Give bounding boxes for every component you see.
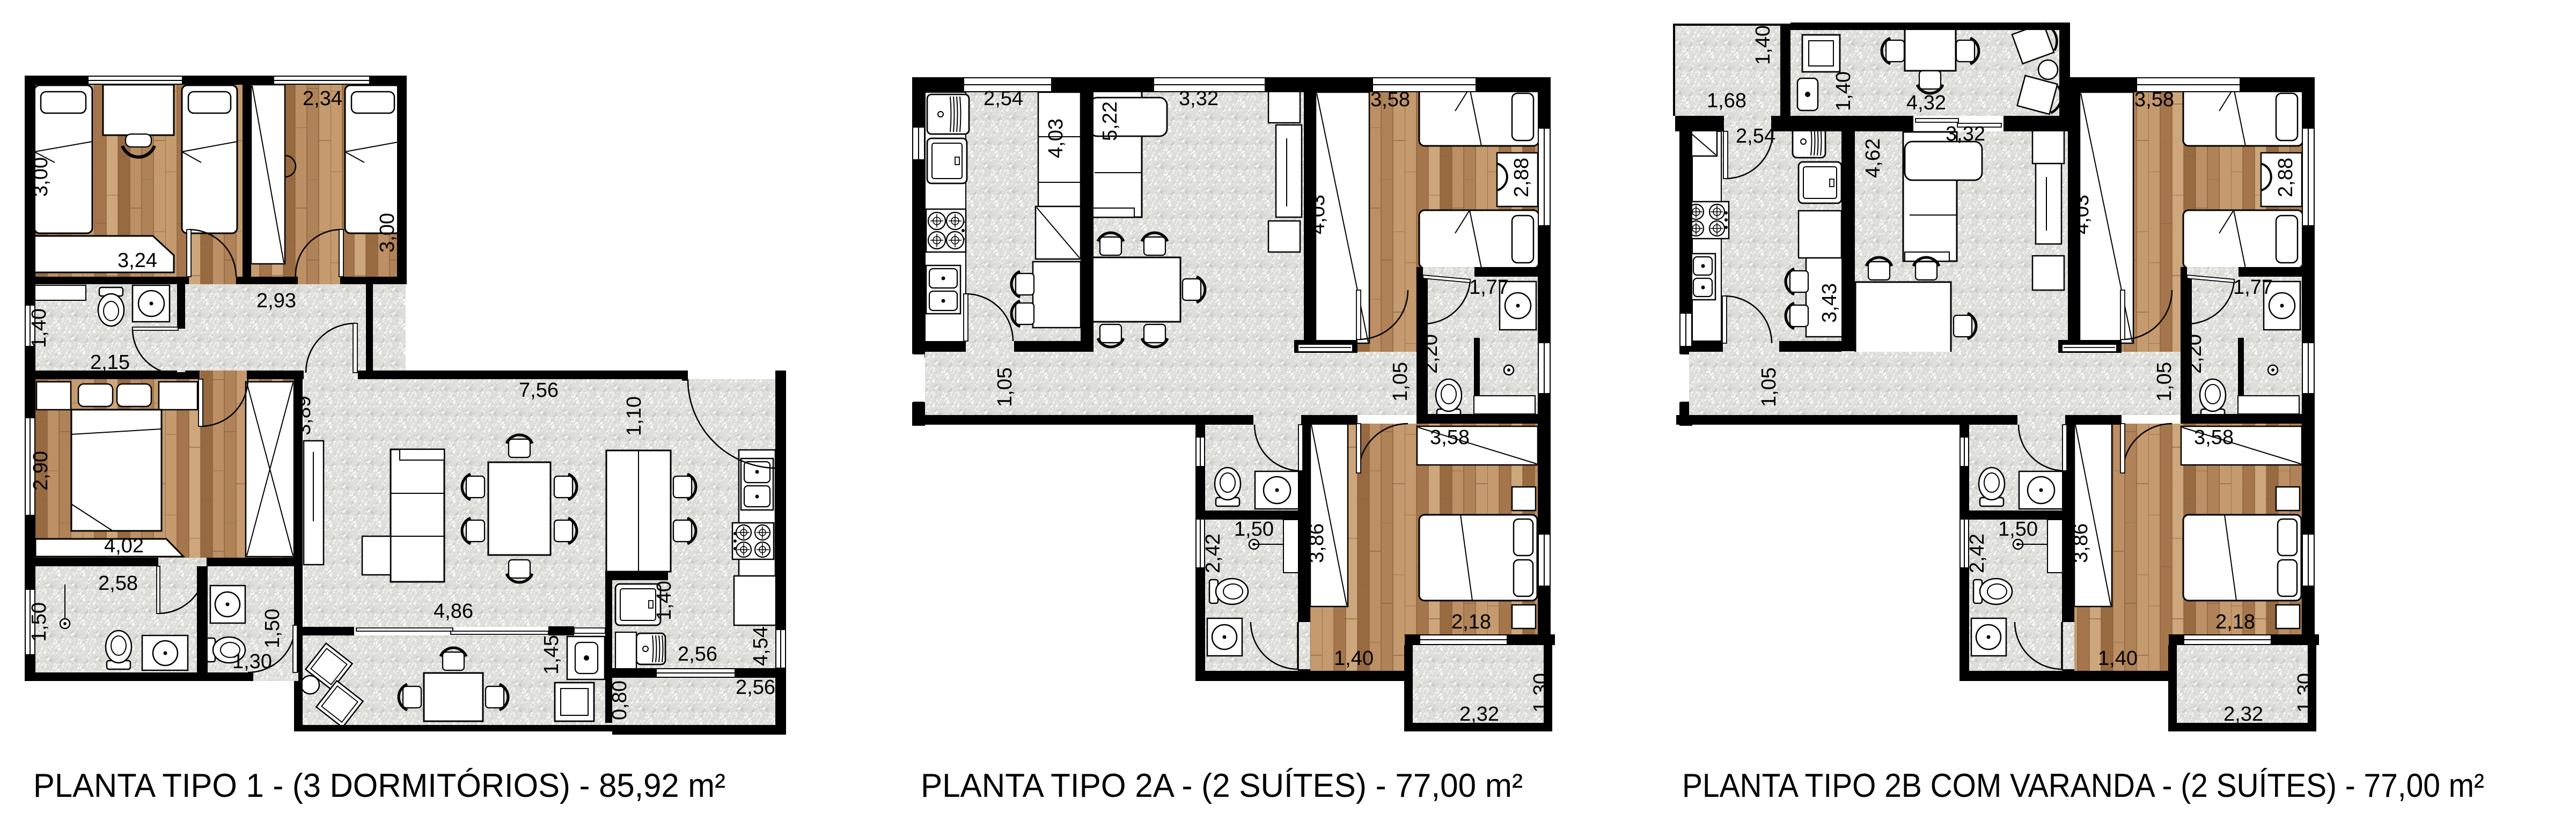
- svg-text:2,88: 2,88: [1510, 158, 1533, 197]
- svg-text:4,03: 4,03: [2071, 195, 2093, 234]
- svg-text:4,86: 4,86: [434, 600, 473, 623]
- svg-text:3,32: 3,32: [1946, 123, 1985, 145]
- svg-text:2,90: 2,90: [30, 451, 52, 491]
- svg-text:3,00: 3,00: [30, 157, 52, 197]
- svg-text:1,10: 1,10: [623, 396, 645, 436]
- svg-text:1,77: 1,77: [2233, 276, 2273, 299]
- svg-text:PLANTA TIPO 1 - (3 DORMITÓRIOS: PLANTA TIPO 1 - (3 DORMITÓRIOS) - 85,92 …: [33, 767, 725, 804]
- svg-text:1,40: 1,40: [1832, 71, 1855, 111]
- svg-text:2,20: 2,20: [1419, 334, 1442, 374]
- svg-text:2,42: 2,42: [1202, 534, 1224, 573]
- svg-text:3,24: 3,24: [118, 249, 157, 272]
- svg-text:1,50: 1,50: [28, 602, 50, 642]
- svg-text:PLANTA TIPO 2B COM VARANDA - (: PLANTA TIPO 2B COM VARANDA - (2 SUÍTES) …: [1682, 767, 2484, 804]
- svg-text:1,30: 1,30: [1530, 673, 1552, 713]
- svg-text:2,18: 2,18: [2215, 611, 2255, 633]
- svg-text:4,02: 4,02: [104, 535, 144, 557]
- svg-text:4,32: 4,32: [1906, 92, 1946, 114]
- svg-text:1,40: 1,40: [1334, 647, 1374, 670]
- svg-text:1,05: 1,05: [994, 367, 1016, 407]
- svg-text:3,32: 3,32: [1179, 87, 1219, 110]
- svg-text:3,43: 3,43: [1818, 283, 1841, 323]
- svg-text:2,20: 2,20: [2183, 334, 2206, 374]
- svg-text:2,58: 2,58: [98, 572, 138, 595]
- svg-text:4,03: 4,03: [1045, 119, 1067, 158]
- svg-text:3,58: 3,58: [1370, 88, 1410, 111]
- svg-text:1,45: 1,45: [540, 635, 563, 675]
- svg-text:2,56: 2,56: [736, 676, 775, 699]
- svg-text:1,05: 1,05: [2153, 362, 2176, 402]
- svg-text:2,54: 2,54: [984, 87, 1023, 110]
- svg-text:4,03: 4,03: [1307, 195, 1329, 234]
- svg-text:2,32: 2,32: [2223, 703, 2263, 726]
- svg-text:3,58: 3,58: [2194, 426, 2234, 449]
- svg-text:2,15: 2,15: [90, 351, 130, 374]
- svg-text:7,56: 7,56: [519, 379, 559, 402]
- svg-text:1,40: 1,40: [2098, 647, 2138, 670]
- svg-text:3,89: 3,89: [292, 396, 315, 435]
- svg-text:3,86: 3,86: [2069, 523, 2092, 563]
- svg-text:PLANTA TIPO 2A - (2 SUÍTES) -: PLANTA TIPO 2A - (2 SUÍTES) - 77,00 m²: [921, 767, 1523, 804]
- svg-text:2,54: 2,54: [1736, 125, 1775, 147]
- svg-text:3,00: 3,00: [376, 213, 399, 253]
- svg-text:3,58: 3,58: [1430, 426, 1470, 449]
- svg-text:2,93: 2,93: [256, 290, 296, 312]
- svg-text:2,42: 2,42: [1966, 534, 1988, 573]
- svg-text:5,22: 5,22: [1099, 101, 1121, 141]
- svg-text:2,18: 2,18: [1451, 611, 1491, 633]
- svg-text:1,05: 1,05: [1758, 367, 1780, 407]
- svg-text:1,50: 1,50: [261, 609, 284, 648]
- svg-text:1,68: 1,68: [1707, 90, 1746, 112]
- svg-text:1,50: 1,50: [1234, 518, 1274, 541]
- svg-text:2,88: 2,88: [2274, 158, 2297, 197]
- svg-text:4,62: 4,62: [1862, 138, 1884, 178]
- svg-text:2,34: 2,34: [303, 87, 342, 110]
- svg-text:1,40: 1,40: [653, 581, 676, 620]
- svg-text:4,54: 4,54: [750, 626, 772, 666]
- svg-text:3,58: 3,58: [2134, 88, 2174, 111]
- svg-text:1,40: 1,40: [1752, 25, 1774, 65]
- svg-text:0,80: 0,80: [608, 680, 631, 720]
- svg-text:1,30: 1,30: [2294, 673, 2316, 713]
- svg-text:2,32: 2,32: [1459, 703, 1499, 726]
- svg-text:1,05: 1,05: [1389, 362, 1412, 402]
- svg-text:3,86: 3,86: [1305, 523, 1328, 563]
- svg-text:1,40: 1,40: [28, 308, 50, 348]
- svg-text:1,30: 1,30: [232, 650, 272, 673]
- svg-text:1,50: 1,50: [1998, 518, 2038, 541]
- svg-text:1,77: 1,77: [1469, 276, 1509, 299]
- svg-text:2,56: 2,56: [678, 643, 717, 665]
